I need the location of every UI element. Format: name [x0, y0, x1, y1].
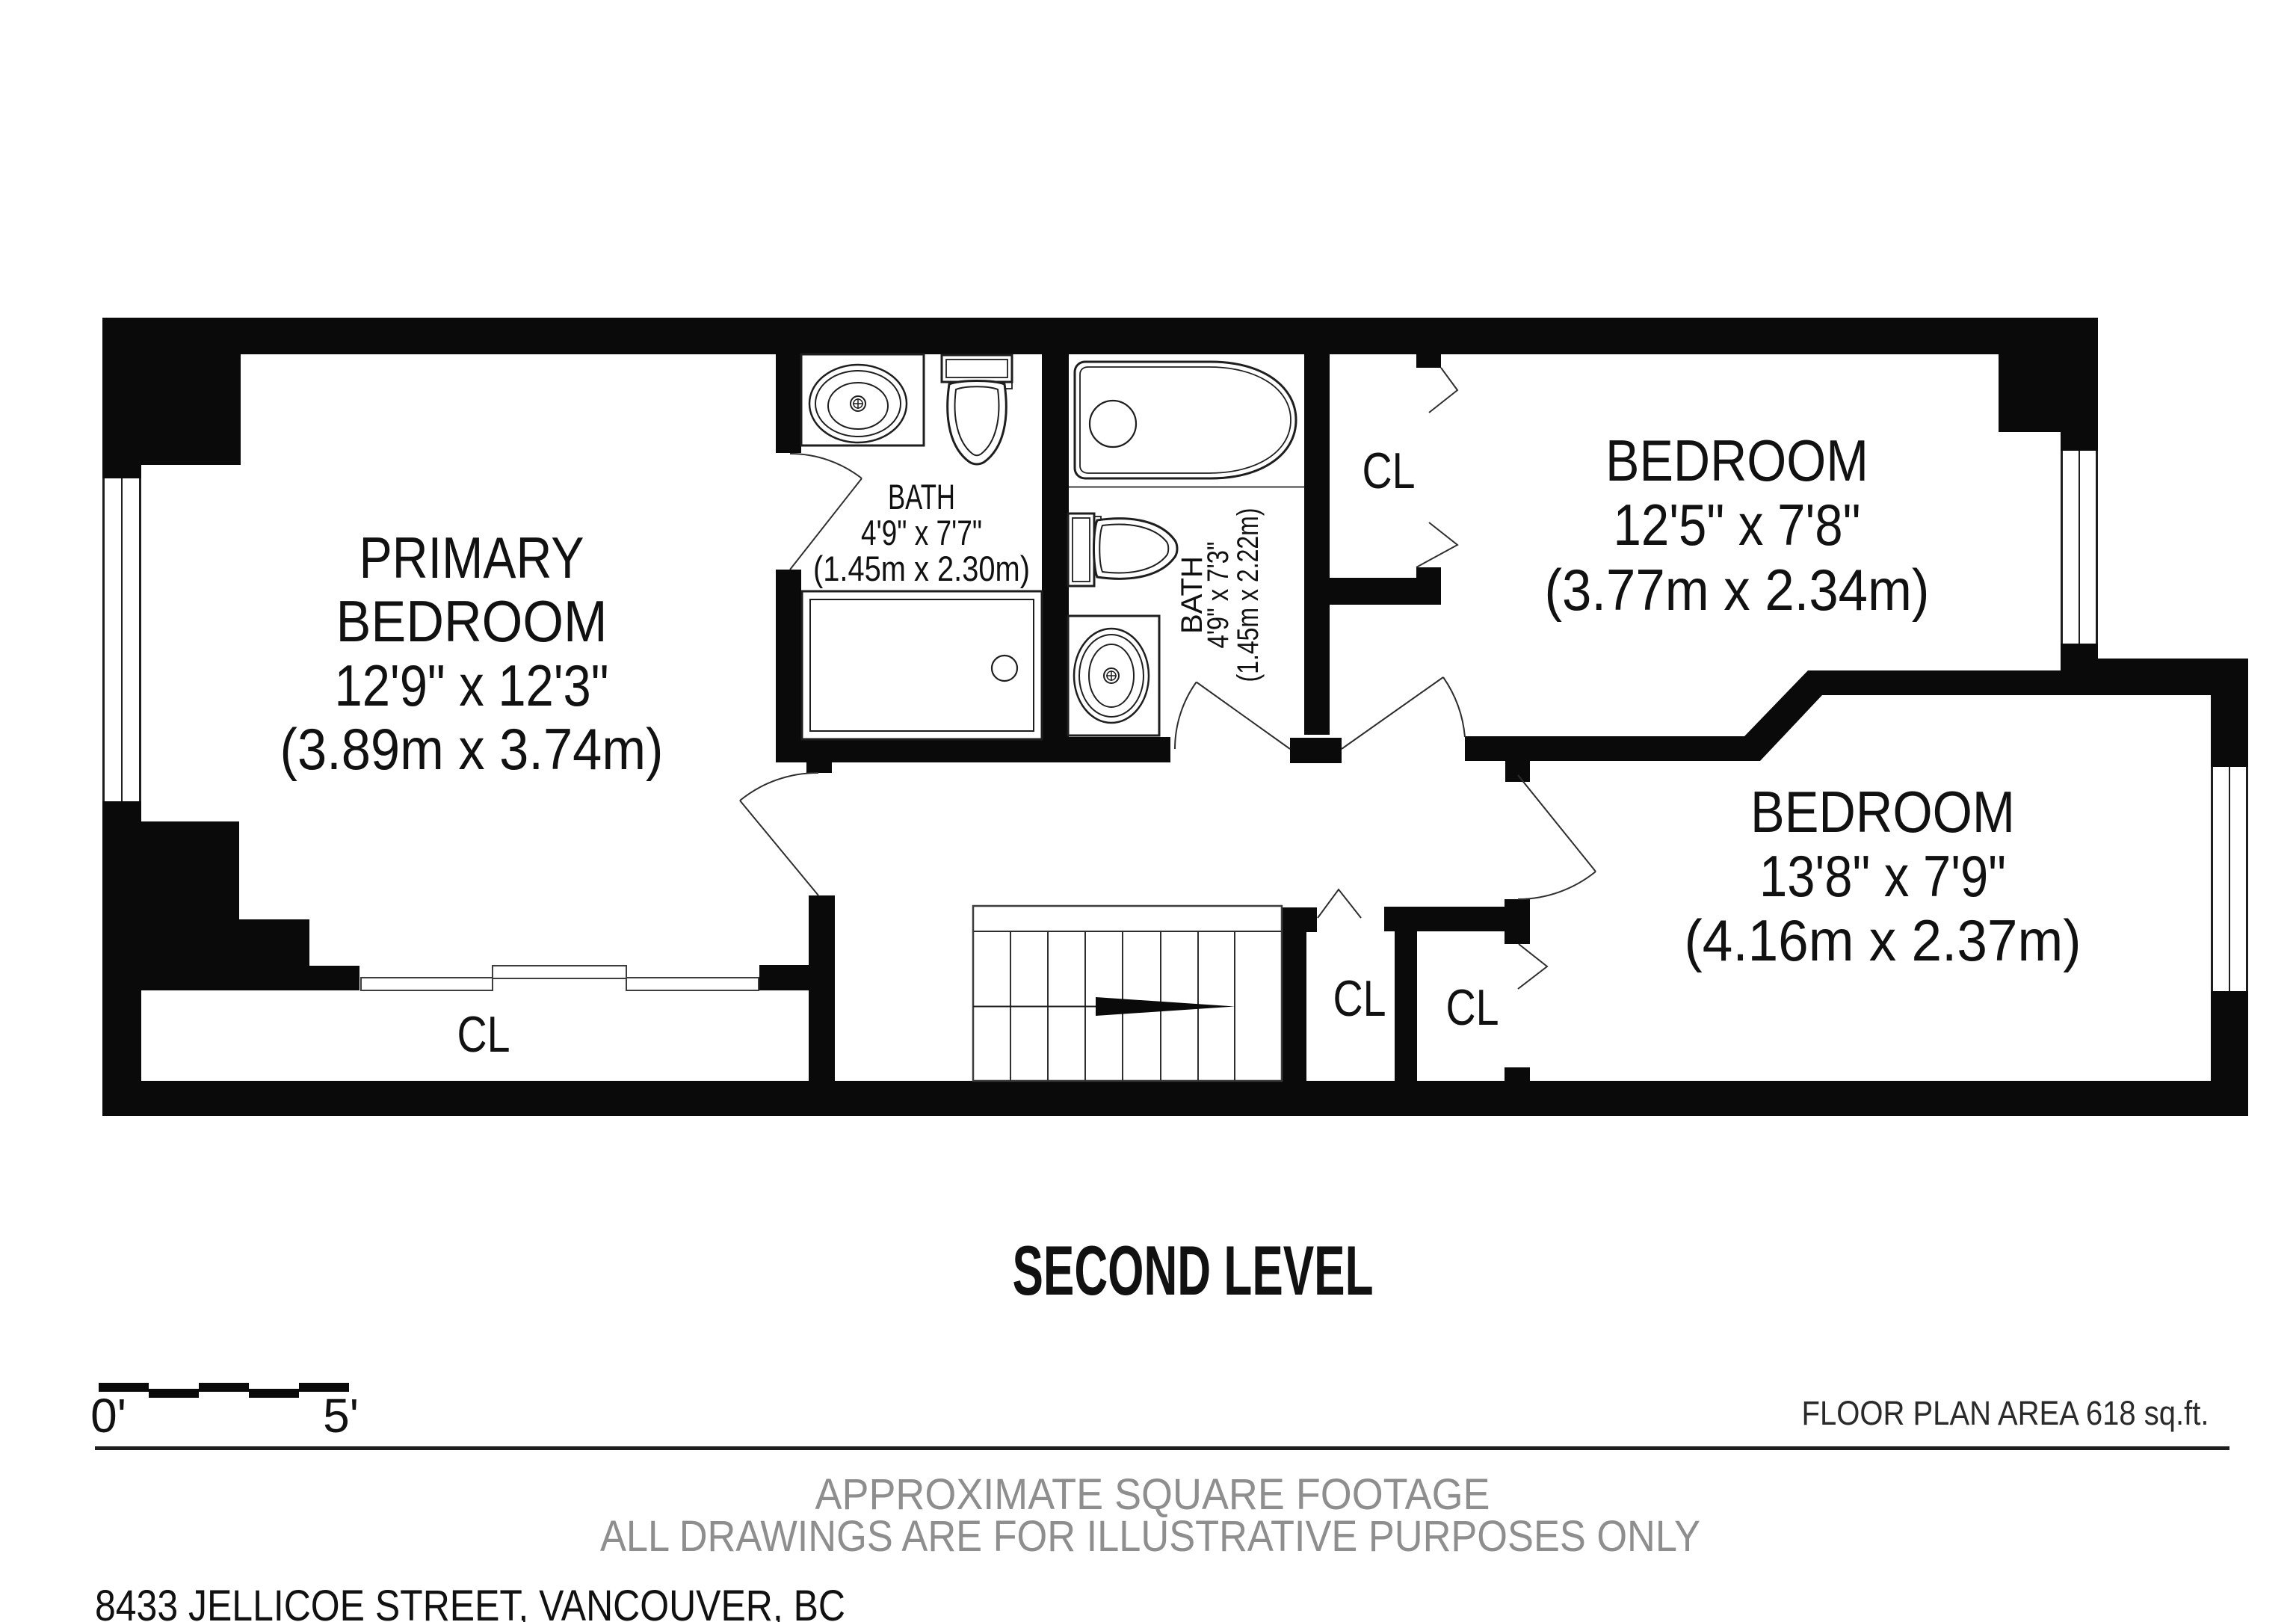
svg-text:4'9" x 7'7": 4'9" x 7'7": [861, 513, 982, 552]
svg-text:12'9" x 12'3": 12'9" x 12'3": [335, 653, 609, 718]
svg-text:CL: CL: [457, 1006, 510, 1063]
svg-text:ALL DRAWINGS ARE FOR ILLUSTRAT: ALL DRAWINGS ARE FOR ILLUSTRATIVE PURPOS…: [600, 1512, 1700, 1561]
svg-text:BEDROOM: BEDROOM: [336, 588, 608, 654]
svg-text:4'9" x 7'3": 4'9" x 7'3": [1202, 542, 1235, 649]
svg-text:SECOND LEVEL: SECOND LEVEL: [1013, 1231, 1374, 1310]
svg-text:5': 5': [323, 1389, 359, 1443]
svg-text:(3.89m x 3.74m): (3.89m x 3.74m): [280, 716, 664, 782]
svg-text:(1.45m x 2.22m): (1.45m x 2.22m): [1232, 508, 1265, 682]
svg-text:12'5" x 7'8": 12'5" x 7'8": [1614, 492, 1861, 558]
svg-text:13'8" x 7'9": 13'8" x 7'9": [1759, 843, 2006, 909]
svg-text:(1.45m x 2.30m): (1.45m x 2.30m): [813, 549, 1030, 588]
svg-text:BEDROOM: BEDROOM: [1750, 779, 2015, 845]
svg-text:BATH: BATH: [888, 477, 955, 516]
svg-text:FLOOR PLAN AREA 618 sq.ft.: FLOOR PLAN AREA 618 sq.ft.: [1802, 1394, 2209, 1432]
svg-text:BEDROOM: BEDROOM: [1605, 428, 1868, 493]
svg-text:(3.77m x 2.34m): (3.77m x 2.34m): [1545, 557, 1930, 623]
svg-text:CL: CL: [1446, 979, 1499, 1036]
svg-text:8433 JELLICOE STREET, VANCOUVE: 8433 JELLICOE STREET, VANCOUVER, BC: [95, 1582, 845, 1622]
svg-text:0': 0': [90, 1389, 126, 1443]
svg-text:PRIMARY: PRIMARY: [359, 525, 584, 590]
svg-text:CL: CL: [1363, 442, 1416, 499]
svg-text:(4.16m x 2.37m): (4.16m x 2.37m): [1685, 907, 2081, 973]
svg-text:CL: CL: [1333, 970, 1386, 1027]
